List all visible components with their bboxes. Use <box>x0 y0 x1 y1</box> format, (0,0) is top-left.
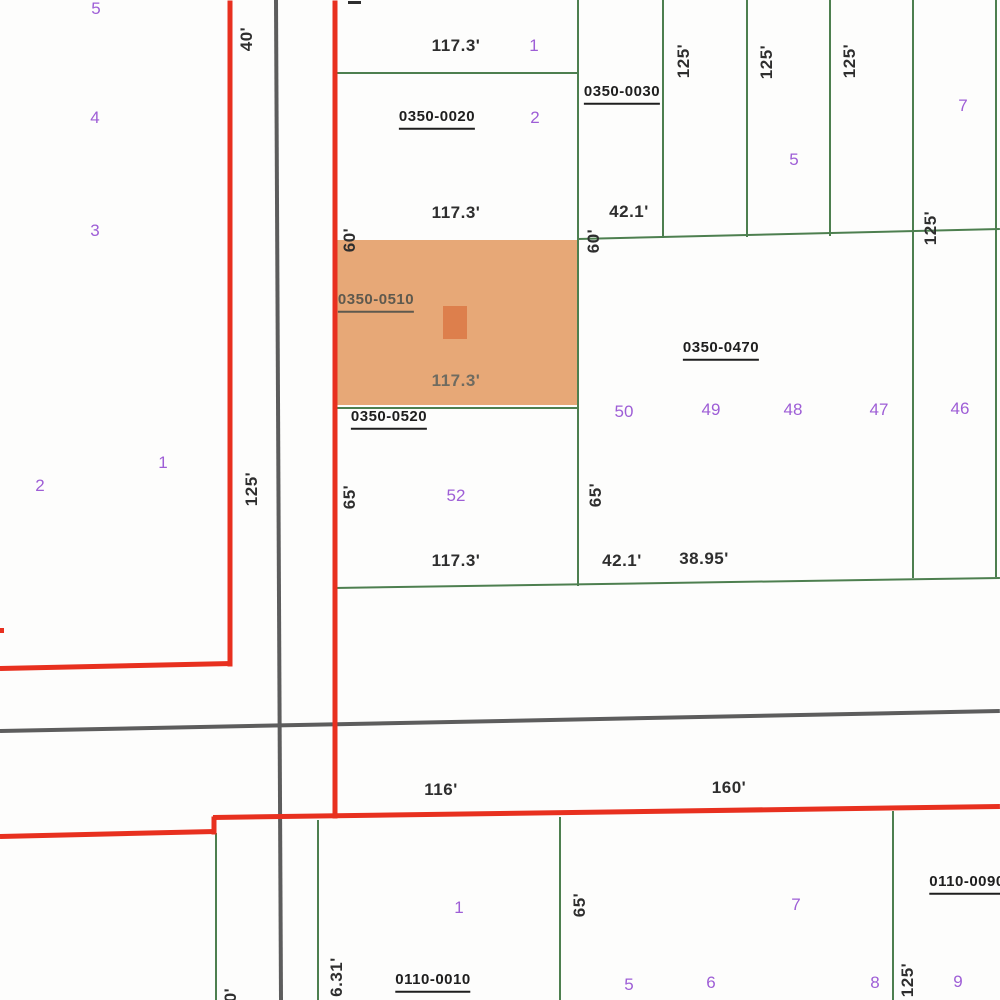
parcel-map: 0350-00200350-00300350-04700350-05100350… <box>0 0 1000 1000</box>
lot-number: 2 <box>35 476 44 496</box>
lot-number: 7 <box>958 96 967 116</box>
parcel-boundary <box>662 0 664 238</box>
parcel-boundary <box>995 0 997 577</box>
dimension-label: 160' <box>712 778 746 798</box>
lot-number: 47 <box>870 400 889 420</box>
lot-number: 1 <box>529 36 538 56</box>
parcel-id-label: 0110-0010 <box>395 972 470 993</box>
parcel-boundary <box>334 577 1000 589</box>
parcel-id-label: 0350-0020 <box>399 109 475 130</box>
dimension-label: 40' <box>237 27 257 51</box>
lot-number: 46 <box>951 399 970 419</box>
dimension-label: 125' <box>840 44 860 78</box>
zone-boundary <box>333 0 338 818</box>
lot-number: 5 <box>789 150 798 170</box>
clipped-label-mark <box>348 1 361 4</box>
dimension-label: 65' <box>570 893 590 917</box>
dimension-label: 6.31' <box>327 957 347 997</box>
parcel-boundary <box>577 0 579 586</box>
parcel-boundary <box>912 0 914 578</box>
lot-number: 4 <box>90 108 99 128</box>
parcel-boundary <box>746 0 748 237</box>
lot-number: 7 <box>791 895 800 915</box>
dimension-label: 125' <box>921 211 941 245</box>
parcel-selection-marker <box>443 306 467 339</box>
lot-number: 5 <box>624 975 633 995</box>
parcel-id-label: 0350-0510 <box>338 292 414 313</box>
zone-boundary <box>213 804 1000 820</box>
lot-number: 9 <box>953 972 962 992</box>
zone-boundary <box>228 0 233 666</box>
parcel-id-label: 0110-0090 <box>929 874 1000 895</box>
zone-boundary <box>0 661 232 671</box>
dimension-label: 117.3' <box>432 551 481 571</box>
dimension-label: 125' <box>242 472 262 506</box>
lot-number: 6 <box>706 973 715 993</box>
dimension-label: 60' <box>340 228 360 252</box>
dimension-label: 125' <box>757 45 777 79</box>
parcel-boundary <box>559 817 561 1000</box>
lot-number: 52 <box>447 486 466 506</box>
dimension-label: 20' <box>221 988 241 1000</box>
dimension-label: 116' <box>424 780 457 800</box>
lot-number: 8 <box>870 973 879 993</box>
dimension-label: 38.95' <box>679 549 729 569</box>
parcel-id-label: 0350-0520 <box>351 409 427 430</box>
zone-boundary-fragment <box>0 628 4 633</box>
dimension-label: 42.1' <box>609 202 649 222</box>
dimension-label: 125' <box>898 963 918 997</box>
dimension-label: 60' <box>584 229 604 253</box>
dimension-label: 65' <box>340 485 360 509</box>
lot-number: 2 <box>530 108 539 128</box>
parcel-boundary <box>335 72 577 74</box>
dimension-label: 65' <box>586 483 606 507</box>
dimension-label: 117.3' <box>432 203 481 223</box>
dimension-label: 117.3' <box>432 371 481 391</box>
dimension-label: 117.3' <box>432 36 481 56</box>
road-centerline <box>0 709 1000 733</box>
dimension-label: 125' <box>674 44 694 78</box>
lot-number: 50 <box>615 402 634 422</box>
lot-number: 48 <box>784 400 803 420</box>
lot-number: 1 <box>454 898 463 918</box>
lot-number: 1 <box>158 453 167 473</box>
lot-number: 5 <box>91 0 100 19</box>
parcel-boundary <box>892 811 894 1000</box>
zone-boundary <box>0 829 215 839</box>
lot-number: 3 <box>90 221 99 241</box>
road-centerline <box>274 0 283 1000</box>
parcel-boundary <box>215 833 217 1000</box>
parcel-id-label: 0350-0030 <box>584 84 660 105</box>
lot-number: 49 <box>702 400 721 420</box>
dimension-label: 42.1' <box>602 551 642 571</box>
parcel-id-label: 0350-0470 <box>683 340 759 361</box>
parcel-boundary <box>317 820 319 1000</box>
parcel-boundary <box>829 0 831 236</box>
